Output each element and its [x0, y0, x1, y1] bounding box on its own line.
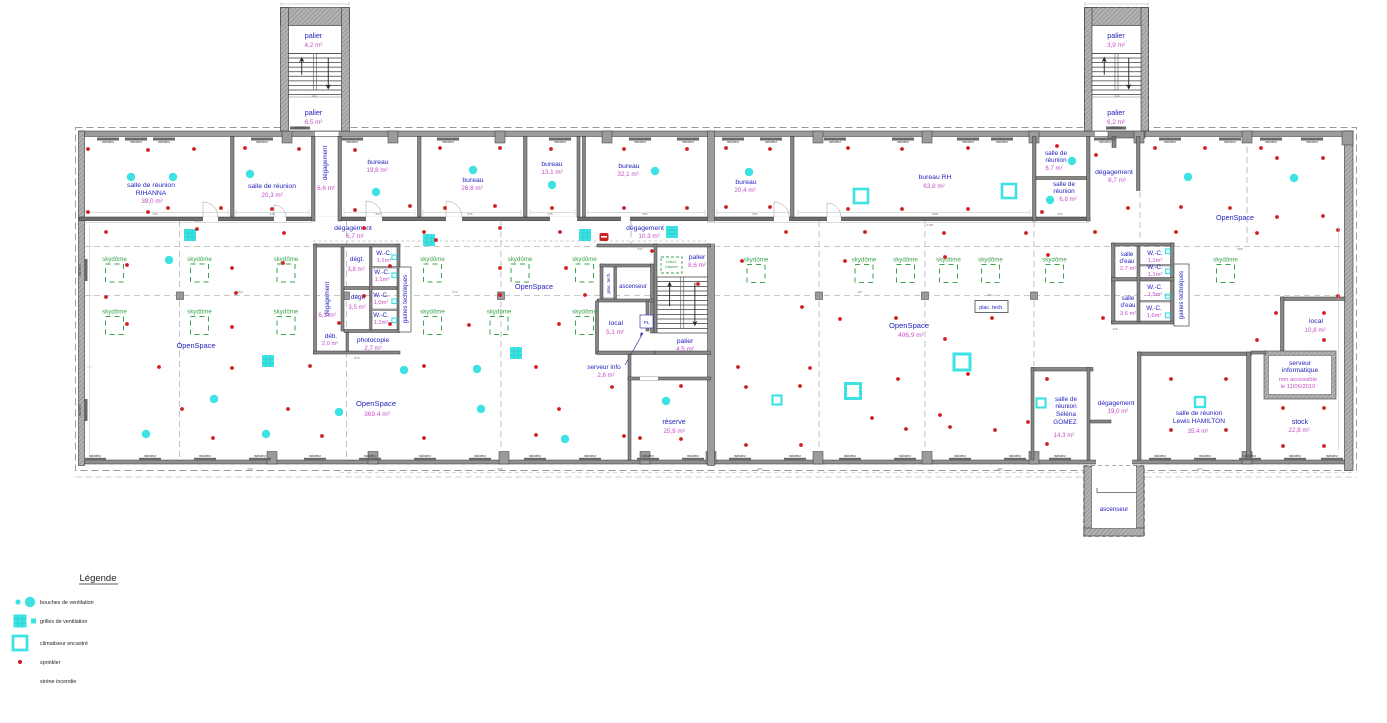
svg-text:5,1 m²: 5,1 m² [606, 329, 624, 336]
svg-text:radiateur: radiateur [897, 140, 911, 144]
svg-text:W.-C.: W.-C. [374, 269, 390, 276]
svg-text:W.-C.: W.-C. [1147, 264, 1163, 271]
svg-text:radiateur: radiateur [1009, 454, 1023, 458]
svg-text:réunion: réunion [1045, 157, 1067, 164]
svg-text:skydôme: skydôme [508, 256, 533, 263]
svg-text:3,6 m²: 3,6 m² [1120, 311, 1136, 317]
svg-text:6,6 m²: 6,6 m² [317, 185, 335, 192]
svg-text:radiateur: radiateur [1326, 454, 1340, 458]
svg-text:skydôme: skydôme [1042, 257, 1067, 264]
svg-text:1,1m²: 1,1m² [374, 320, 389, 326]
svg-text:8,6 m²: 8,6 m² [688, 262, 706, 269]
svg-text:informatique: informatique [1282, 367, 1319, 374]
svg-text:OpenSpace: OpenSpace [515, 282, 553, 291]
svg-text:le 11/06/2010: le 11/06/2010 [1281, 384, 1316, 390]
svg-text:1080: 1080 [932, 212, 939, 216]
svg-text:radiateur: radiateur [294, 126, 308, 130]
svg-text:448: 448 [269, 212, 274, 216]
svg-text:sprinkler: sprinkler [40, 660, 61, 666]
svg-text:1,1m²: 1,1m² [375, 277, 390, 283]
svg-text:radiateur: radiateur [144, 454, 158, 458]
svg-text:561: 561 [752, 212, 757, 216]
svg-text:sirène incendie: sirène incendie [40, 679, 76, 685]
svg-text:radiateur: radiateur [102, 140, 116, 144]
svg-text:540: 540 [375, 212, 380, 216]
svg-text:19,8 m²: 19,8 m² [366, 167, 387, 174]
svg-text:radiateur: radiateur [474, 454, 488, 458]
svg-text:605: 605 [467, 212, 472, 216]
svg-text:1,6m²: 1,6m² [1147, 313, 1162, 319]
svg-text:radiateur: radiateur [734, 454, 748, 458]
svg-text:palier: palier [1107, 108, 1125, 117]
svg-text:63,8 m²: 63,8 m² [923, 183, 944, 190]
svg-text:2,7 m²: 2,7 m² [1120, 266, 1136, 272]
svg-text:radiateur: radiateur [682, 140, 696, 144]
svg-text:gaines techniques: gaines techniques [1179, 271, 1185, 319]
svg-text:palier: palier [677, 338, 694, 345]
svg-text:1,1m²: 1,1m² [377, 258, 392, 264]
svg-text:radiateur: radiateur [1224, 140, 1238, 144]
svg-text:dégagement: dégagement [1095, 169, 1133, 176]
svg-text:radiateur: radiateur [962, 140, 976, 144]
svg-text:skydôme: skydôme [102, 309, 127, 316]
svg-text:radiateur: radiateur [996, 140, 1010, 144]
svg-text:d'alarme: d'alarme [665, 265, 678, 269]
svg-text:radiateur: radiateur [419, 454, 433, 458]
svg-text:skydôme: skydôme [936, 257, 961, 264]
svg-text:ascenseur: ascenseur [619, 284, 647, 290]
svg-text:241: 241 [637, 247, 642, 251]
svg-text:radiateur: radiateur [789, 454, 803, 458]
svg-text:GOMEZ: GOMEZ [1053, 419, 1077, 426]
svg-text:13,1 m²: 13,1 m² [541, 169, 562, 176]
svg-text:590: 590 [642, 212, 647, 216]
svg-text:bouches de ventilation: bouches de ventilation [40, 600, 94, 606]
svg-text:OpenSpace: OpenSpace [176, 341, 215, 350]
svg-text:6,3 m²: 6,3 m² [318, 312, 335, 319]
svg-text:non accessible: non accessible [1279, 377, 1317, 383]
svg-text:dégagement: dégagement [334, 225, 372, 232]
svg-text:radiateur: radiateur [727, 140, 741, 144]
svg-text:skydôme: skydôme [852, 257, 877, 264]
svg-text:244: 244 [1114, 94, 1119, 98]
svg-text:stock: stock [1292, 419, 1309, 426]
svg-text:560: 560 [237, 290, 242, 294]
svg-text:palier: palier [1107, 31, 1125, 40]
svg-text:radiateur: radiateur [254, 454, 268, 458]
svg-text:réserve: réserve [662, 419, 685, 426]
svg-text:1,0m²: 1,0m² [374, 300, 389, 306]
svg-text:salle de réunion: salle de réunion [127, 182, 175, 189]
svg-text:plac. tech.: plac. tech. [606, 273, 611, 294]
svg-text:radiateur: radiateur [256, 140, 270, 144]
svg-text:244: 244 [311, 94, 316, 98]
svg-text:radiateur: radiateur [1099, 140, 1113, 144]
svg-text:32,1 m²: 32,1 m² [617, 171, 638, 178]
svg-text:6,8 m²: 6,8 m² [1059, 196, 1076, 203]
svg-text:OpenSpace: OpenSpace [889, 321, 929, 330]
svg-text:skydôme: skydôme [102, 256, 127, 263]
svg-text:photocopie: photocopie [357, 337, 390, 344]
svg-text:364: 364 [987, 293, 992, 297]
svg-text:palier: palier [305, 108, 323, 117]
svg-text:W.-C.: W.-C. [376, 250, 392, 257]
svg-text:radiateur: radiateur [642, 454, 656, 458]
svg-text:10,3 m²: 10,3 m² [638, 233, 659, 240]
svg-text:1137: 1137 [195, 219, 202, 223]
svg-text:bureau: bureau [618, 163, 639, 170]
svg-text:W.-C.: W.-C. [1147, 284, 1163, 291]
svg-text:déb.: déb. [325, 333, 338, 340]
svg-text:skydôme: skydôme [420, 309, 445, 316]
svg-text:dégagement: dégagement [1098, 400, 1135, 407]
svg-text:radiateur: radiateur [442, 140, 456, 144]
svg-text:skydôme: skydôme [978, 257, 1003, 264]
svg-text:radiateur: radiateur [634, 140, 648, 144]
svg-text:local: local [1309, 318, 1323, 325]
svg-text:radiateur: radiateur [199, 454, 213, 458]
svg-text:radiateur: radiateur [529, 454, 543, 458]
svg-text:bureau: bureau [462, 177, 483, 184]
svg-text:radiateur: radiateur [1199, 454, 1213, 458]
svg-text:skydôme: skydôme [487, 309, 512, 316]
svg-text:RIHANNA: RIHANNA [136, 190, 167, 197]
svg-text:radiateur: radiateur [1289, 454, 1303, 458]
svg-text:6,7 m²: 6,7 m² [346, 233, 364, 240]
svg-text:palier: palier [689, 254, 706, 261]
svg-text:radiateur: radiateur [1265, 140, 1279, 144]
svg-text:radiateur: radiateur [130, 140, 144, 144]
svg-text:serveur: serveur [1289, 360, 1312, 367]
svg-text:3,5 m²: 3,5 m² [348, 304, 365, 311]
svg-text:salle: salle [1121, 251, 1134, 258]
svg-text:radiateur: radiateur [364, 454, 378, 458]
svg-text:salle: salle [1122, 295, 1135, 302]
svg-text:salle de réunion: salle de réunion [248, 183, 296, 190]
svg-text:radiateur: radiateur [1164, 140, 1178, 144]
svg-text:19,0 m²: 19,0 m² [1108, 408, 1129, 415]
svg-text:radiateur: radiateur [954, 454, 968, 458]
svg-text:584: 584 [997, 467, 1002, 471]
svg-text:2130: 2130 [927, 223, 934, 227]
svg-text:radiateur: radiateur [554, 140, 568, 144]
svg-text:extinct.: extinct. [666, 260, 677, 264]
svg-text:skydôme: skydôme [274, 309, 299, 316]
svg-text:réunion: réunion [1053, 188, 1075, 195]
svg-text:skydôme: skydôme [274, 256, 299, 263]
svg-text:6,5 m²: 6,5 m² [304, 119, 322, 126]
svg-text:dégagement: dégagement [324, 282, 331, 317]
svg-text:22,8 m²: 22,8 m² [1288, 427, 1309, 434]
svg-text:10,8 m²: 10,8 m² [1304, 327, 1325, 334]
svg-text:8,7 m²: 8,7 m² [1108, 177, 1126, 184]
svg-text:2,7 m²: 2,7 m² [364, 345, 381, 352]
svg-text:salle de: salle de [1053, 181, 1075, 188]
svg-text:radiateur: radiateur [1110, 126, 1124, 130]
svg-text:38,0 m²: 38,0 m² [141, 198, 162, 205]
svg-text:bureau: bureau [735, 179, 756, 186]
svg-text:369,4 m²: 369,4 m² [364, 411, 390, 418]
svg-text:W.-C.: W.-C. [373, 292, 389, 299]
svg-text:radiateur: radiateur [309, 454, 323, 458]
svg-text:palier: palier [305, 31, 323, 40]
svg-text:25,9 m²: 25,9 m² [663, 428, 684, 435]
svg-text:35,4 m²: 35,4 m² [1188, 428, 1209, 435]
svg-text:420: 420 [1112, 327, 1117, 331]
svg-text:skydôme: skydôme [572, 256, 597, 263]
svg-text:407: 407 [857, 290, 862, 294]
svg-text:bureau: bureau [541, 161, 562, 168]
svg-text:1,1m²: 1,1m² [1148, 272, 1163, 278]
svg-text:salle de réunion: salle de réunion [1176, 410, 1223, 417]
svg-text:3,8 m²: 3,8 m² [347, 266, 364, 273]
svg-text:546: 546 [247, 467, 252, 471]
svg-text:radiateur: radiateur [78, 403, 82, 417]
svg-text:PL: PL [644, 320, 650, 325]
svg-text:radiateur: radiateur [346, 140, 360, 144]
svg-text:dégagement: dégagement [322, 146, 329, 181]
svg-text:d'eau: d'eau [1120, 258, 1136, 265]
svg-text:26,8 m²: 26,8 m² [461, 185, 482, 192]
svg-text:radiateur: radiateur [844, 454, 858, 458]
svg-text:skydôme: skydôme [420, 256, 445, 263]
svg-text:545: 545 [497, 467, 502, 471]
svg-text:OpenSpace: OpenSpace [356, 399, 396, 408]
svg-text:radiateur: radiateur [89, 454, 103, 458]
svg-text:radiateur: radiateur [1154, 454, 1168, 458]
svg-text:675: 675 [354, 356, 359, 360]
svg-text:radiateur: radiateur [1054, 454, 1068, 458]
svg-text:radiateur: radiateur [1244, 454, 1258, 458]
svg-text:ascenseur: ascenseur [1100, 506, 1129, 513]
svg-text:grilles de ventilation: grilles de ventilation [40, 619, 87, 625]
svg-text:serveur info: serveur info [587, 364, 621, 371]
svg-text:skydôme: skydôme [893, 257, 918, 264]
svg-text:radiateur: radiateur [1306, 140, 1320, 144]
svg-text:Séléna: Séléna [1056, 411, 1076, 418]
svg-text:W.-C.: W.-C. [373, 312, 389, 319]
svg-text:1,5m²: 1,5m² [1148, 292, 1163, 298]
svg-text:14,3 m²: 14,3 m² [1054, 432, 1075, 439]
svg-text:radiateur: radiateur [158, 140, 172, 144]
svg-text:4,5 m²: 4,5 m² [676, 346, 694, 353]
svg-text:plac. tech.: plac. tech. [979, 305, 1004, 311]
svg-text:bureau RH: bureau RH [919, 174, 952, 181]
svg-text:572: 572 [1197, 467, 1202, 471]
svg-text:581: 581 [757, 467, 762, 471]
svg-text:3,9 m²: 3,9 m² [1107, 42, 1125, 49]
svg-text:radiateur: radiateur [765, 140, 779, 144]
svg-text:406,9 m²: 406,9 m² [898, 332, 924, 339]
svg-text:275: 275 [547, 212, 552, 216]
svg-text:Légende: Légende [80, 573, 117, 584]
svg-text:20,3 m²: 20,3 m² [261, 192, 282, 199]
svg-text:958: 958 [1237, 247, 1242, 251]
svg-text:radiateur: radiateur [829, 140, 843, 144]
svg-text:W.-C.: W.-C. [1147, 250, 1163, 257]
svg-text:20,4 m²: 20,4 m² [734, 187, 755, 194]
svg-text:dégt.: dégt. [350, 256, 364, 263]
svg-text:salle de: salle de [1045, 150, 1067, 157]
svg-text:d'eau: d'eau [1121, 302, 1137, 309]
svg-text:radiateur: radiateur [687, 454, 701, 458]
svg-text:2,0 m²: 2,0 m² [322, 341, 338, 347]
svg-text:4,2 m²: 4,2 m² [304, 42, 322, 49]
svg-text:2,6 m²: 2,6 m² [597, 373, 614, 379]
svg-text:OpenSpace: OpenSpace [1216, 213, 1254, 222]
svg-text:radiateur: radiateur [78, 263, 82, 277]
svg-text:6,7 m²: 6,7 m² [1045, 165, 1062, 172]
svg-text:dégagement: dégagement [626, 225, 664, 232]
svg-text:skydôme: skydôme [187, 309, 212, 316]
svg-text:radiateur: radiateur [584, 454, 598, 458]
svg-text:radiateur: radiateur [899, 454, 913, 458]
svg-text:climatiseur encastré: climatiseur encastré [40, 641, 88, 647]
svg-text:réunion: réunion [1055, 403, 1077, 410]
svg-text:bureau: bureau [367, 159, 388, 166]
svg-text:skydôme: skydôme [1213, 257, 1238, 264]
svg-text:local: local [609, 320, 623, 327]
svg-text:W.-C.: W.-C. [1146, 305, 1162, 312]
svg-text:440: 440 [152, 212, 157, 216]
svg-text:258: 258 [1057, 212, 1062, 216]
svg-text:Lewis HAMILTON: Lewis HAMILTON [1173, 418, 1225, 425]
svg-text:skydôme: skydôme [744, 257, 769, 264]
svg-text:skydôme: skydôme [187, 256, 212, 263]
svg-text:572: 572 [452, 290, 457, 294]
svg-text:skydôme: skydôme [572, 309, 597, 316]
svg-text:salle de: salle de [1055, 396, 1077, 403]
svg-text:gaines techniques: gaines techniques [403, 275, 409, 323]
